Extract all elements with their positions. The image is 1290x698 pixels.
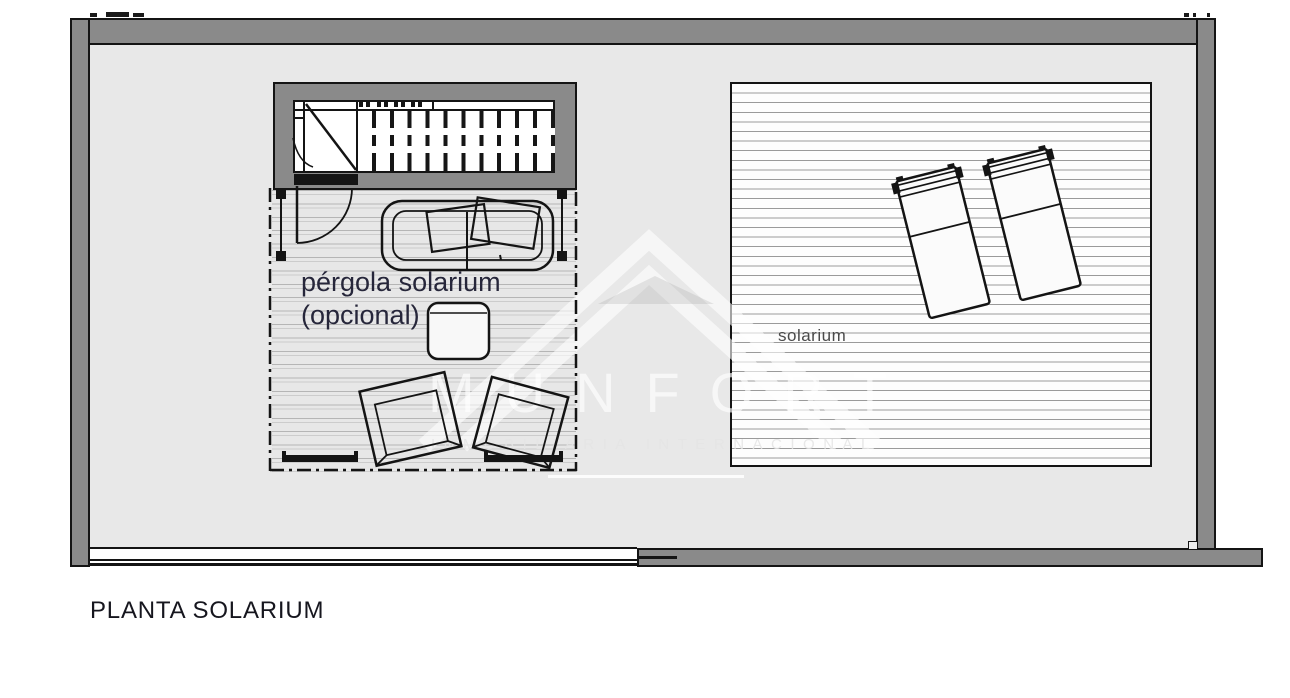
pergola-label-line2: (opcional) <box>301 299 521 332</box>
pergola-post <box>276 189 286 199</box>
lounger-body <box>987 149 1081 301</box>
pergola-label: pérgola solarium (opcional) <box>301 266 521 332</box>
pergola-post <box>557 189 567 199</box>
sun-lounger-left <box>890 162 995 320</box>
bench-hook <box>354 451 358 455</box>
plan-linework <box>0 0 1290 698</box>
solarium-label: solarium <box>778 326 846 346</box>
door-swing-arc <box>297 188 352 243</box>
stair-direction-line <box>306 104 356 170</box>
bench-hook <box>559 451 563 455</box>
pergola-post <box>276 251 286 261</box>
sofa-mark <box>500 255 501 260</box>
armchair-outline <box>360 372 462 466</box>
armchair-left <box>360 372 462 466</box>
sun-lounger-right <box>981 144 1086 302</box>
armchair-seat <box>486 394 554 457</box>
bench-hook <box>282 451 286 455</box>
pergola-post <box>557 251 567 261</box>
lounger-body <box>896 167 990 319</box>
bench-bar-left <box>282 455 358 462</box>
armchair-seat <box>375 390 448 455</box>
stair-direction-curve <box>293 138 313 167</box>
floor-plan-canvas: MUNFORT INMOBILIARIA INTERNACIONAL <box>0 0 1290 698</box>
plan-title: PLANTA SOLARIUM <box>90 597 324 625</box>
pergola-label-line1: pérgola solarium <box>301 266 521 299</box>
